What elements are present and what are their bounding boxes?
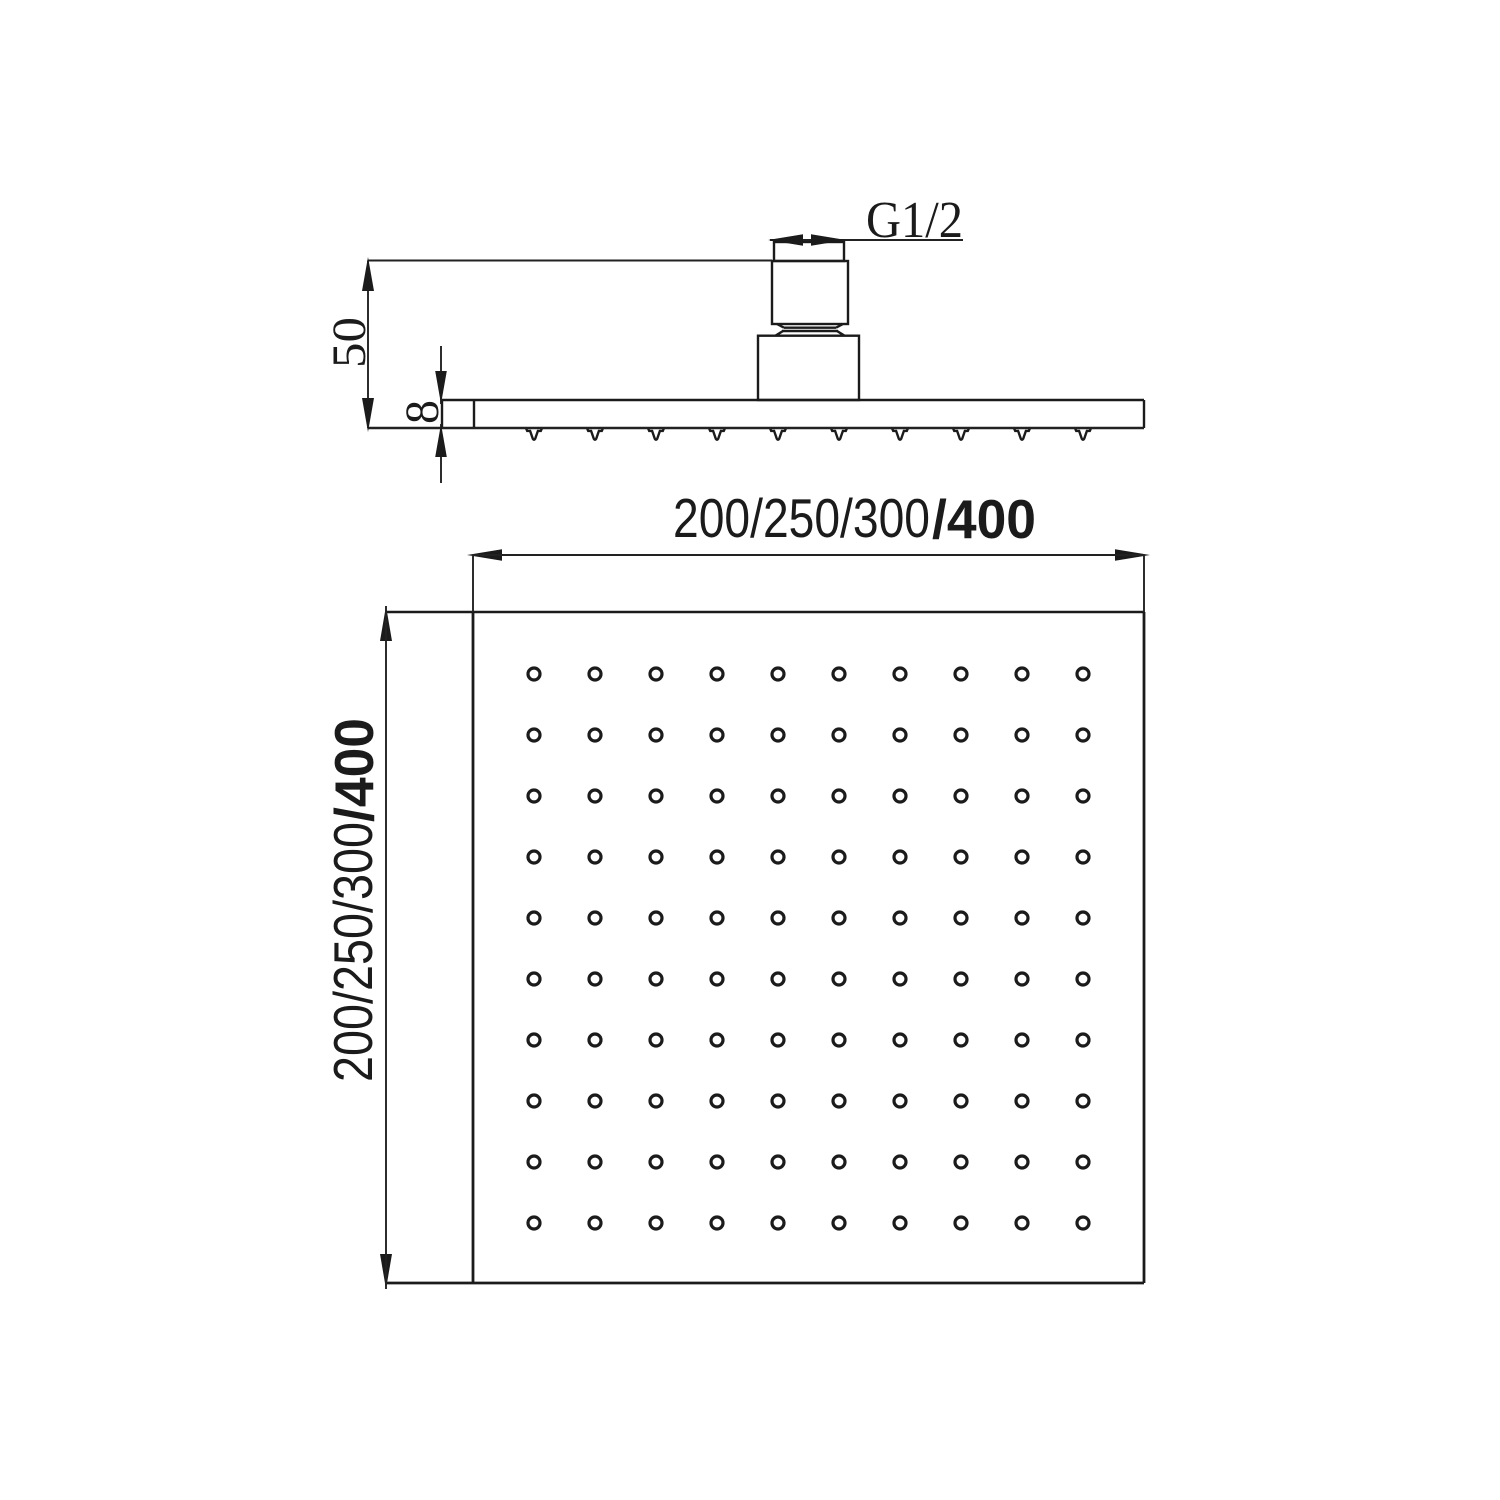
svg-text:/400: /400 bbox=[323, 718, 385, 822]
svg-text:/400: /400 bbox=[932, 488, 1036, 550]
svg-text:8: 8 bbox=[396, 400, 449, 424]
svg-text:200/250/300: 200/250/300 bbox=[673, 487, 930, 549]
svg-text:G1/2: G1/2 bbox=[866, 192, 963, 249]
svg-text:50: 50 bbox=[323, 317, 376, 368]
svg-text:200/250/300: 200/250/300 bbox=[322, 822, 384, 1082]
